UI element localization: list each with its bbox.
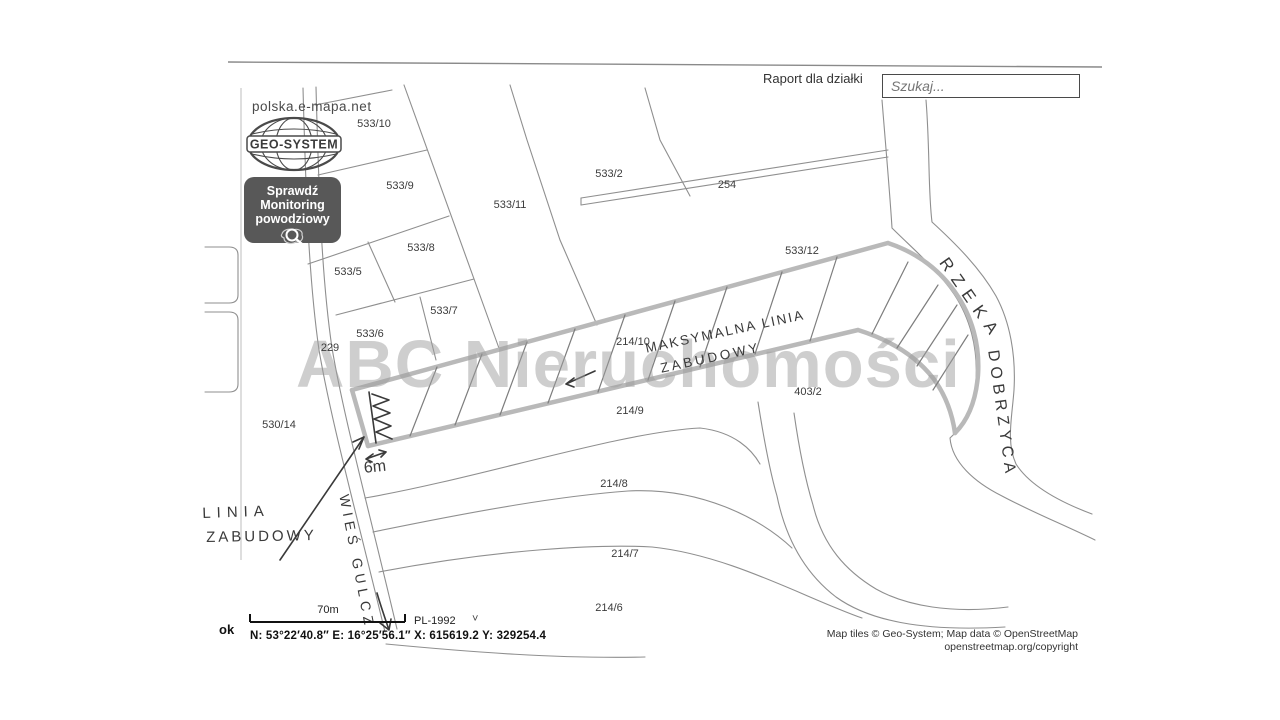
watermark-text: ABC Nieruchomości xyxy=(296,326,961,403)
geo-system-logo-text: GEO-SYSTEM xyxy=(250,138,338,152)
boundary-line xyxy=(336,279,474,315)
boundary-line xyxy=(404,85,500,351)
scale-bar-label: 70m xyxy=(303,604,353,616)
report-for-parcel-label: Raport dla działki xyxy=(763,71,863,86)
map-attribution: Map tiles © Geo-System; Map data © OpenS… xyxy=(827,628,1078,654)
edge-bracket xyxy=(205,247,238,303)
flood-badge-line2: Monitoring xyxy=(244,198,341,212)
search-input[interactable] xyxy=(882,74,1080,98)
crs-selector[interactable]: PL-1992 xyxy=(414,615,456,627)
flood-magnifier-icon xyxy=(276,226,310,246)
edge-bracket xyxy=(205,312,238,392)
attribution-line1: Map tiles © Geo-System; Map data © OpenS… xyxy=(827,628,1078,641)
road-254-bottom-edge xyxy=(581,157,888,205)
field-boundary xyxy=(373,491,792,548)
field-boundary xyxy=(386,644,645,657)
boundary-line xyxy=(368,242,395,302)
ok-button[interactable]: ok xyxy=(219,622,234,637)
cursor-coordinates: N: 53°22′40.8″ E: 16°25′56.1″ X: 615619.… xyxy=(250,630,546,642)
field-boundary xyxy=(365,428,760,498)
annotation-distance-6m: 6m xyxy=(363,458,387,478)
scanned-map-report-page: { "header": { "report_label": "Raport dl… xyxy=(0,0,1280,720)
site-name: polska.e-mapa.net xyxy=(252,99,372,114)
flood-monitoring-badge[interactable]: Sprawdź Monitoring powodziowy xyxy=(244,177,341,243)
annotation-building-line-2: ZABUDOWY xyxy=(206,527,317,546)
chevron-down-icon[interactable]: ˅ xyxy=(472,613,478,625)
field-boundary xyxy=(379,546,862,618)
frame-top-line xyxy=(228,62,1102,67)
geo-system-logo[interactable]: GEO-SYSTEM xyxy=(244,114,344,176)
attribution-link[interactable]: openstreetmap.org/copyright xyxy=(827,641,1078,654)
meander-edge xyxy=(794,413,1008,610)
flood-badge-line3: powodziowy xyxy=(244,212,341,226)
meander-edge xyxy=(758,402,1005,628)
flood-badge-line1: Sprawdź xyxy=(244,184,341,198)
road-254-top-edge xyxy=(581,150,888,198)
boundary-line xyxy=(645,88,690,196)
annotation-building-line-1: LINIA xyxy=(202,503,270,522)
